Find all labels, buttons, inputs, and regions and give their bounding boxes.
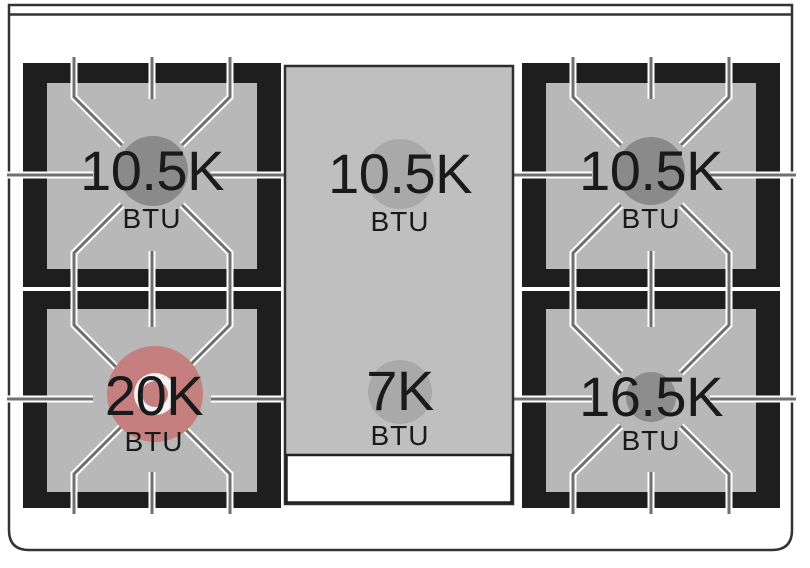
burner-bottom-right-btu-unit: BTU xyxy=(622,427,681,455)
burner-bottom-center-btu-unit: BTU xyxy=(371,422,430,450)
burner-top-right-btu-value: 10.5K xyxy=(579,143,723,199)
burner-bottom-center-btu-value: 7K xyxy=(366,363,434,419)
burner-bottom-left-btu-unit: BTU xyxy=(125,428,184,456)
burner-bottom-left-btu-value: 20K xyxy=(105,368,203,424)
burner-top-right-btu-unit: BTU xyxy=(622,205,681,233)
burner-top-left-btu-unit: BTU xyxy=(123,205,182,233)
burner-bottom-right-btu-value: 16.5K xyxy=(579,369,723,425)
drip-tray xyxy=(287,455,512,503)
cooktop-diagram: 10.5K BTU 10.5K BTU 10.5K BTU 20K BTU 7K… xyxy=(0,0,810,568)
burner-top-center-btu-unit: BTU xyxy=(371,208,430,236)
burner-top-center-btu-value: 10.5K xyxy=(328,146,472,202)
burner-top-left-btu-value: 10.5K xyxy=(80,143,224,199)
cooktop-drawing xyxy=(0,0,810,568)
